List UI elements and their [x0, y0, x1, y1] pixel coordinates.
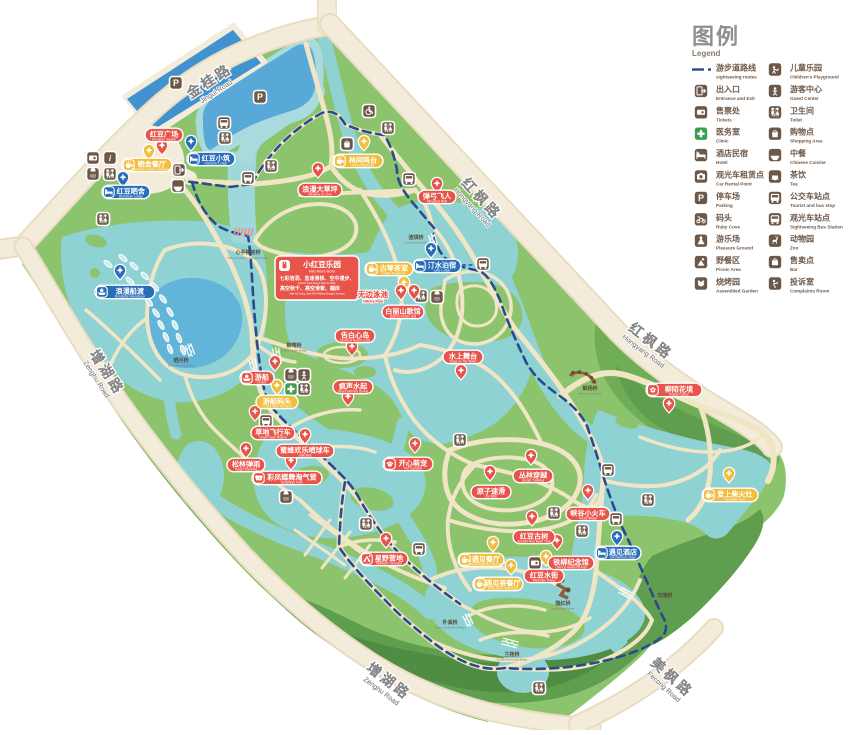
svg-text:玫瑰桥: 玫瑰桥	[657, 592, 673, 599]
svg-text:七彩溶洞、急速滑梯、空中漫步、: 七彩溶洞、急速滑梯、空中漫步、	[279, 275, 354, 282]
svg-text:儿童乐园: 儿童乐园	[789, 63, 822, 73]
svg-text:Children's Playground: Children's Playground	[790, 75, 839, 80]
svg-text:Starlight Campsite: Starlight Campsite	[376, 562, 402, 566]
svg-text:Red Bean Lodge Restaurant: Red Bean Lodge Restaurant	[132, 168, 173, 172]
svg-text:观光车站点: 观光车站点	[790, 212, 830, 222]
svg-text:Hidden Rails Bridge: Hidden Rails Bridge	[552, 607, 575, 611]
svg-text:Tea: Tea	[790, 182, 798, 187]
svg-text:Hongdou Square: Hongdou Square	[152, 138, 176, 142]
svg-text:Enchanted Teahouse: Enchanted Teahouse	[488, 587, 518, 591]
svg-text:Complaints Room: Complaints Room	[790, 289, 829, 294]
svg-text:Love Interlock Bridge: Love Interlock Bridge	[404, 241, 429, 245]
svg-text:Balman Music Hall: Balman Music Hall	[390, 315, 417, 319]
svg-text:Sightseeing Bus Station: Sightseeing Bus Station	[790, 224, 843, 229]
svg-text:Island of Heart Loops: Island of Heart Loops	[340, 339, 371, 343]
svg-text:Orchids and Cassia Bridge: Orchids and Cassia Bridge	[497, 658, 528, 662]
svg-text:High Air Swing, High Wire Raft: High Air Swing, High Wire Rafting, Bunge…	[290, 293, 346, 296]
svg-text:P: P	[698, 193, 704, 203]
svg-text:兰桂桥: 兰桂桥	[504, 651, 520, 658]
svg-text:茶饮: 茶饮	[789, 170, 807, 180]
svg-text:酒店民宿: 酒店民宿	[716, 148, 748, 158]
svg-text:游步道路线: 游步道路线	[716, 63, 756, 73]
svg-text:Flower Dance: Flower Dance	[669, 393, 689, 397]
svg-text:Tickets: Tickets	[716, 117, 732, 122]
svg-text:Picnic Area: Picnic Area	[716, 267, 741, 272]
svg-text:Lake Lodge: Lake Lodge	[434, 269, 451, 273]
svg-text:Zip Wire: Zip Wire	[485, 495, 497, 499]
svg-text:游乐场: 游乐场	[716, 234, 740, 244]
svg-text:Riverside Street: Riverside Street	[533, 579, 556, 583]
svg-text:Gourmet Love: Gourmet Love	[725, 498, 745, 502]
svg-text:Stage on the Water: Stage on the Water	[449, 360, 477, 364]
svg-text:Tourist and bus stop: Tourist and bus stop	[790, 203, 835, 208]
svg-text:Infinity Pool: Infinity Pool	[363, 300, 384, 304]
svg-text:卫生间: 卫生间	[790, 105, 814, 115]
svg-text:Colorful Cave,Speed Slide,Air: Colorful Cave,Speed Slide,Air Walk,	[298, 282, 337, 285]
svg-text:烧烤园: 烧烤园	[716, 277, 740, 287]
svg-text:图例: 图例	[692, 24, 740, 49]
svg-text:Enchanted Restaurant: Enchanted Restaurant	[470, 563, 502, 567]
svg-text:Stream Supplement Bridge: Stream Supplement Bridge	[434, 626, 466, 630]
svg-text:晒月桥: 晒月桥	[173, 357, 189, 364]
svg-text:停车场: 停车场	[716, 191, 740, 201]
svg-text:枫杨桥: 枫杨桥	[582, 385, 598, 392]
svg-text:Cruise Ship Terminal: Cruise Ship Terminal	[262, 405, 292, 409]
svg-text:Legend: Legend	[692, 49, 721, 58]
svg-text:Target Shooting: Target Shooting	[235, 468, 258, 472]
svg-text:码头: 码头	[716, 212, 732, 222]
svg-text:P: P	[173, 78, 179, 88]
svg-text:Shout with the Spring: Shout with the Spring	[338, 390, 369, 394]
svg-text:中餐: 中餐	[790, 148, 807, 158]
svg-text:Ferris Wheel: Ferris Wheel	[579, 517, 597, 521]
svg-text:Hongdou Lodge: Hongdou Lodge	[204, 162, 227, 166]
svg-text:野餐区: 野餐区	[716, 255, 740, 265]
svg-text:Miss Red's World: Miss Red's World	[309, 270, 335, 274]
svg-text:售票处: 售票处	[715, 105, 741, 115]
svg-text:Hotel: Hotel	[716, 160, 727, 165]
svg-text:出入口: 出入口	[716, 84, 740, 94]
svg-text:Enchanted Lodge: Enchanted Lodge	[610, 556, 635, 560]
svg-text:无边泳池: 无边泳池	[357, 289, 388, 299]
svg-text:隐红桥: 隐红桥	[555, 600, 571, 607]
svg-text:P: P	[257, 92, 263, 102]
svg-text:Pet Carnival: Pet Carnival	[404, 467, 422, 471]
svg-text:Parking: Parking	[716, 203, 733, 208]
svg-text:Zoo: Zoo	[790, 246, 799, 251]
svg-text:Shopping Area: Shopping Area	[790, 139, 823, 144]
svg-text:Ancient Red Bean Tree: Ancient Red Bean Tree	[518, 540, 551, 544]
svg-text:医务室: 医务室	[716, 127, 740, 137]
svg-text:小红豆乐园: 小红豆乐园	[302, 259, 341, 269]
svg-text:Jungle Trekking: Jungle Trekking	[522, 479, 545, 483]
svg-text:Pleasure Ground: Pleasure Ground	[716, 246, 753, 251]
svg-text:Cruise: Cruise	[257, 381, 266, 385]
svg-text:购物点: 购物点	[790, 127, 814, 137]
svg-text:Grass-track Racing: Grass-track Racing	[259, 436, 287, 440]
svg-text:Car Rental Point: Car Rental Point	[716, 182, 752, 187]
svg-text:Chinese Cuisine: Chinese Cuisine	[790, 160, 826, 165]
svg-text:Slingshot Ride: Slingshot Ride	[427, 200, 448, 204]
svg-text:Guest Center: Guest Center	[790, 96, 819, 101]
svg-text:公交车站点: 公交车站点	[790, 191, 830, 201]
svg-text:Rose Bridge: Rose Bridge	[658, 599, 673, 603]
svg-text:高空秋千、高空滑索、蹦床: 高空秋千、高空滑索、蹦床	[280, 285, 341, 292]
svg-text:Jolly Bee: Jolly Bee	[299, 454, 312, 458]
svg-text:柳莺桥: 柳莺桥	[286, 342, 302, 349]
svg-text:动物园: 动物园	[790, 234, 814, 244]
svg-text:心手相连桥: 心手相连桥	[235, 249, 261, 256]
svg-text:售卖点: 售卖点	[789, 255, 814, 265]
svg-text:Red Bean Lodge: Red Bean Lodge	[119, 195, 143, 199]
svg-text:朴溪桥: 朴溪桥	[442, 619, 458, 626]
svg-text:Willow Warbler Bridge: Willow Warbler Bridge	[281, 349, 307, 353]
svg-text:Forest Birdsong: Forest Birdsong	[352, 164, 375, 168]
svg-text:sightseeing routes: sightseeing routes	[716, 75, 757, 80]
svg-text:Clinic: Clinic	[716, 139, 729, 144]
svg-text:Romantic Houseboat: Romantic Houseboat	[115, 295, 145, 299]
svg-text:Reeds Duck Bridge: Reeds Duck Bridge	[579, 392, 602, 396]
svg-text:Toilet: Toilet	[790, 117, 802, 122]
svg-text:Meadow of Love: Meadow of Love	[308, 193, 332, 197]
svg-text:Assembled Garden: Assembled Garden	[716, 289, 758, 294]
svg-text:QianLiu Memorial Hall: QianLiu Memorial Hall	[555, 566, 587, 570]
svg-text:涟琪桥: 涟琪桥	[408, 234, 424, 241]
svg-text:游客中心: 游客中心	[790, 84, 822, 94]
svg-text:With and Heart Coordination Br: With and Heart Coordination Bridge	[228, 256, 270, 260]
svg-text:观光车租赁点: 观光车租赁点	[716, 170, 764, 180]
svg-text:Butterflies Park: Butterflies Park	[281, 481, 303, 485]
svg-text:Guqin Teahouse: Guqin Teahouse	[382, 272, 405, 276]
svg-text:投诉室: 投诉室	[790, 277, 814, 287]
svg-text:Moon Watching Bridge: Moon Watching Bridge	[168, 364, 195, 368]
svg-text:Ruby Cove: Ruby Cove	[716, 224, 740, 229]
svg-text:Entrance and Exit: Entrance and Exit	[716, 96, 755, 101]
svg-text:Bar: Bar	[790, 267, 798, 272]
